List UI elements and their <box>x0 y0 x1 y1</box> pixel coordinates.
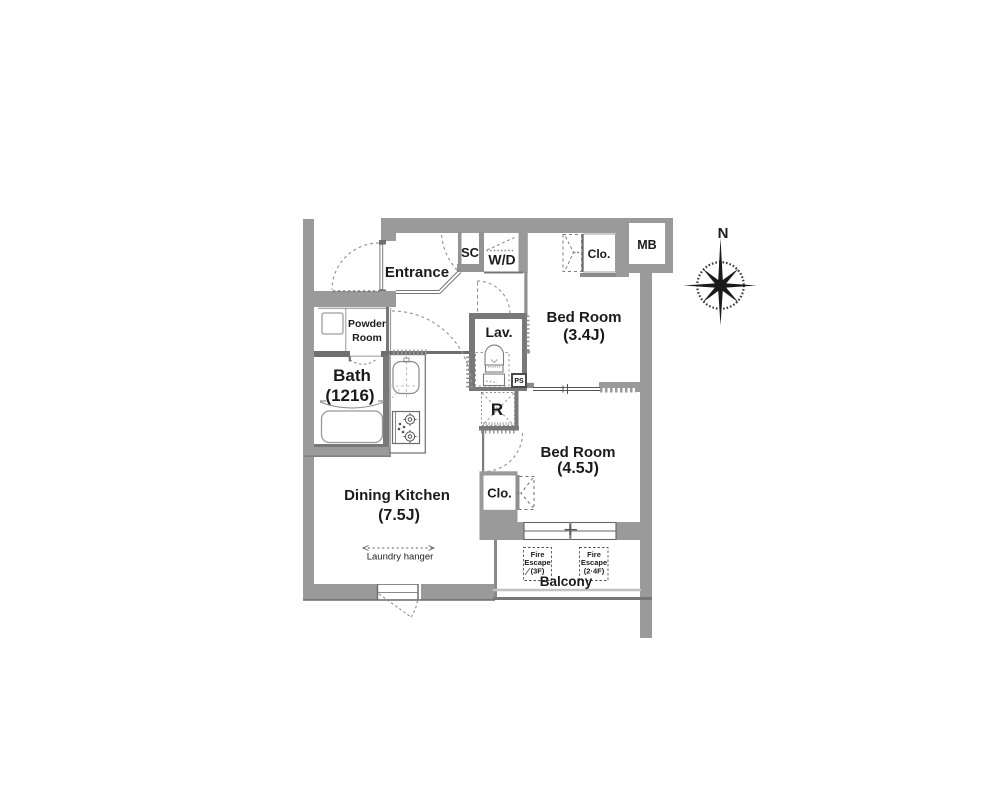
svg-text:(4.5J): (4.5J) <box>557 460 599 477</box>
svg-text:Dining Kitchen: Dining Kitchen <box>344 487 450 504</box>
svg-text:(1216): (1216) <box>325 386 374 405</box>
svg-text:Bed Room: Bed Room <box>547 309 622 326</box>
svg-text:Laundry hanger: Laundry hanger <box>367 552 434 563</box>
svg-text:MB: MB <box>637 238 656 252</box>
svg-text:R: R <box>491 400 503 419</box>
svg-text:Entrance: Entrance <box>385 264 449 281</box>
svg-text:N: N <box>718 225 729 242</box>
svg-text:PS: PS <box>514 378 524 385</box>
svg-text:W/D: W/D <box>488 252 515 268</box>
svg-text:Bed Room: Bed Room <box>541 444 616 461</box>
svg-text:Lav.: Lav. <box>486 324 513 340</box>
svg-text:Bath: Bath <box>333 366 371 385</box>
svg-text:Clo.: Clo. <box>487 486 512 501</box>
svg-text:Room: Room <box>352 332 382 344</box>
svg-text:Powder: Powder <box>348 318 386 330</box>
svg-text:Clo.: Clo. <box>588 247 611 261</box>
svg-text:SC: SC <box>461 245 480 260</box>
svg-text:(3.4J): (3.4J) <box>563 327 605 344</box>
svg-text:Balcony: Balcony <box>540 574 593 589</box>
svg-text:(7.5J): (7.5J) <box>378 507 420 524</box>
